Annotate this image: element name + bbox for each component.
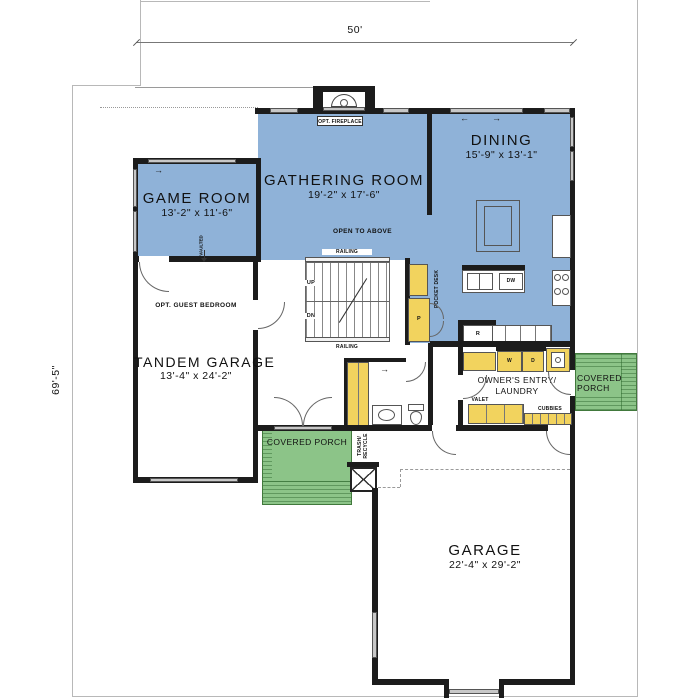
railing-label-bottom: RAILING bbox=[322, 344, 372, 350]
closet-cabinet bbox=[347, 362, 369, 426]
washer-label: W bbox=[497, 358, 522, 364]
kitchen-cabinet bbox=[552, 215, 571, 258]
garage-door-jamb bbox=[499, 683, 504, 698]
ceiling-break-line bbox=[400, 469, 401, 487]
wall-hall-right bbox=[428, 343, 433, 431]
door-arc bbox=[546, 431, 570, 455]
game-room-name: GAME ROOM bbox=[136, 190, 258, 207]
lot-line bbox=[72, 696, 638, 697]
sliding-door bbox=[148, 159, 236, 163]
sink-divider bbox=[479, 273, 480, 290]
roof-line bbox=[135, 87, 318, 88]
window bbox=[383, 108, 409, 113]
wall-top bbox=[255, 108, 575, 114]
stairs-up-label: UP bbox=[303, 280, 319, 286]
ceiling-break-line bbox=[400, 469, 570, 470]
burner bbox=[562, 274, 569, 281]
gathering-room-name: GATHERING ROOM bbox=[258, 172, 430, 189]
open-to-above-label: OPEN TO ABOVE bbox=[320, 228, 405, 235]
french-door-sill bbox=[274, 426, 332, 430]
toilet-tank bbox=[408, 404, 424, 411]
porch-line bbox=[263, 481, 351, 482]
railing-label-top: RAILING bbox=[322, 249, 372, 255]
cubbies-label: CUBBIES bbox=[530, 406, 570, 412]
garage-size: 22'-4" x 29'-2" bbox=[420, 559, 550, 571]
toilet-bowl bbox=[410, 411, 422, 425]
ceiling-break-line bbox=[378, 487, 400, 488]
porch-right-label: COVERED PORCH bbox=[577, 373, 623, 393]
dimension-label-width: 50' bbox=[330, 24, 380, 36]
refrigerator-label: R bbox=[463, 331, 493, 337]
wall-garage-bottom bbox=[499, 679, 575, 685]
dimension-label-height: 69'-5" bbox=[50, 350, 62, 410]
dimension-tick bbox=[570, 39, 577, 46]
railing-bottom bbox=[305, 337, 390, 342]
range-hood-inner bbox=[484, 206, 512, 246]
tandem-garage-name: TANDEM GARAGE bbox=[134, 354, 258, 370]
window bbox=[372, 612, 377, 658]
window bbox=[270, 108, 298, 113]
burner bbox=[554, 274, 561, 281]
dining-name: DINING bbox=[430, 132, 573, 149]
valet-label: VALET bbox=[466, 397, 494, 403]
closet-line bbox=[358, 363, 359, 425]
cubbies-cabinet bbox=[524, 413, 572, 425]
porch-right-line1: COVERED bbox=[577, 373, 623, 383]
pantry-label: P bbox=[413, 316, 425, 322]
burner bbox=[562, 288, 569, 295]
game-room-size: 13'-2" x 11'-6" bbox=[136, 207, 258, 219]
lot-line bbox=[140, 1, 430, 2]
floor-plan: 50' 69'-5" COVERED PORCH COVERED PORCH R… bbox=[0, 0, 700, 700]
opt-fireplace-label: OPT. FIREPLACE bbox=[317, 116, 363, 126]
powder-sink bbox=[378, 409, 395, 421]
pocket-desk-cabinet bbox=[409, 264, 428, 296]
stair-landing-line bbox=[305, 301, 390, 302]
porch-steps bbox=[272, 481, 351, 504]
wall-garage-right bbox=[570, 430, 575, 685]
stairs-dn-label: DN bbox=[303, 313, 319, 319]
staircase bbox=[305, 262, 390, 342]
door-arc bbox=[303, 397, 332, 426]
door-arc bbox=[274, 397, 303, 426]
dishwasher-label: DW bbox=[499, 278, 523, 284]
railing-top bbox=[305, 257, 390, 262]
tandem-garage-label: TANDEM GARAGE 13'-4" x 24'-2" bbox=[134, 354, 258, 382]
valet-cabinet bbox=[468, 404, 524, 424]
door-arc bbox=[258, 302, 285, 329]
garage-name: GARAGE bbox=[420, 542, 550, 559]
dining-size: 15'-9" x 13'-1" bbox=[430, 149, 573, 161]
porch-left-label: COVERED PORCH bbox=[264, 437, 350, 447]
garage-door bbox=[449, 689, 499, 694]
kitchen-sink bbox=[467, 273, 493, 290]
game-room-label: GAME ROOM 13'-2" x 11'-6" bbox=[136, 190, 258, 219]
door-arc bbox=[432, 431, 456, 455]
window bbox=[544, 108, 570, 113]
porch-steps bbox=[621, 369, 636, 397]
porch-steps bbox=[576, 354, 636, 369]
gathering-room-label: GATHERING ROOM 19'-2" x 17'-6" bbox=[258, 172, 430, 201]
door-arc bbox=[139, 262, 169, 292]
arrow-left-icon: ← bbox=[460, 115, 469, 121]
lot-line bbox=[140, 0, 141, 86]
garage-door bbox=[150, 478, 238, 482]
burner bbox=[554, 288, 561, 295]
owners-entry-line2: LAUNDRY bbox=[472, 386, 562, 397]
vaulted-label: VAULTED bbox=[199, 231, 204, 261]
door-arc bbox=[406, 362, 426, 382]
fireplace-hearth bbox=[323, 107, 365, 111]
garage-label: GARAGE 22'-4" x 29'-2" bbox=[420, 542, 550, 571]
overhang-line bbox=[100, 107, 258, 108]
dimension-line bbox=[136, 42, 574, 43]
lot-line bbox=[72, 85, 73, 697]
opt-guest-bedroom-label: OPT. GUEST BEDROOM bbox=[146, 302, 246, 309]
gathering-room-size: 19'-2" x 17'-6" bbox=[258, 189, 430, 201]
porch-steps bbox=[576, 397, 636, 410]
bench-cabinet bbox=[463, 352, 496, 371]
dining-label: DINING 15'-9" x 13'-1" bbox=[430, 132, 573, 161]
arrow-right-icon: → bbox=[380, 366, 389, 372]
laundry-sink-drain bbox=[555, 357, 561, 363]
lot-line bbox=[637, 0, 638, 697]
wall-garage-bottom bbox=[375, 679, 449, 685]
fireplace-icon bbox=[340, 99, 348, 107]
tandem-garage-size: 13'-4" x 24'-2" bbox=[134, 370, 258, 382]
lot-line bbox=[72, 85, 141, 86]
dryer-label: D bbox=[522, 358, 544, 364]
arrow-right-icon: → bbox=[492, 115, 501, 121]
arrow-right-icon: → bbox=[154, 167, 163, 173]
vaulted-arrow-head bbox=[201, 258, 207, 262]
porch-right-line2: PORCH bbox=[577, 383, 623, 393]
